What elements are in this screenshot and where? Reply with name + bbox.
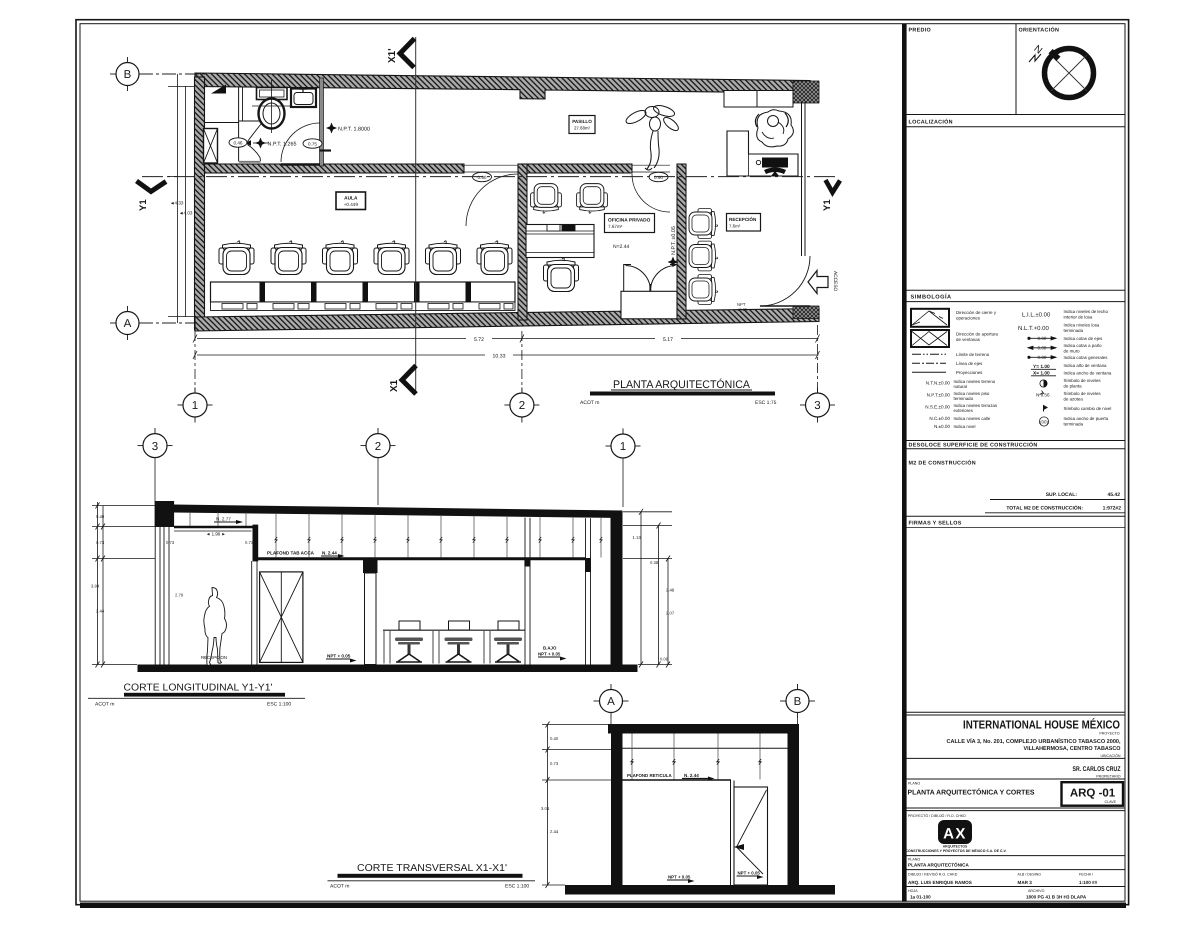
svg-text:Indica ancho de ventana: Indica ancho de ventana (1064, 371, 1112, 376)
svg-text:exteriores: exteriores (954, 408, 974, 413)
svg-text:ORIENTACIÓN: ORIENTACIÓN (1019, 27, 1060, 34)
svg-text:N.P.T. ±0.05: N.P.T. ±0.05 (671, 226, 677, 255)
svg-text:ALB / DESING: ALB / DESING (1018, 873, 1042, 877)
svg-text:PLANTA ARQUITECTÓNICA: PLANTA ARQUITECTÓNICA (908, 862, 970, 868)
svg-text:45.42: 45.42 (1107, 492, 1120, 498)
svg-text:ACOT m: ACOT m (95, 702, 114, 708)
svg-text:TOTAL M2 DE CONSTRUCCIÓN:: TOTAL M2 DE CONSTRUCCIÓN: (1006, 505, 1083, 512)
svg-text:ARQUITECTOS: ARQUITECTOS (943, 844, 968, 848)
svg-text:DESGLOCE SUPERFICIE DE CONSTRU: DESGLOCE SUPERFICIE DE CONSTRUCCIÓN (909, 441, 1038, 448)
svg-text:SUP. LOCAL:: SUP. LOCAL: (1046, 492, 1078, 498)
svg-text:3.94: 3.94 (91, 584, 100, 589)
svg-text:0.08: 0.08 (660, 657, 669, 662)
svg-text:Símbolo de niveles: Símbolo de niveles (1064, 378, 1102, 383)
svg-text:2.48: 2.48 (666, 588, 675, 593)
svg-text:Símbolo cambio de nivel: Símbolo cambio de nivel (1064, 406, 1112, 411)
svg-text:2.79: 2.79 (175, 593, 184, 598)
svg-text:3: 3 (152, 441, 158, 453)
svg-text:B: B (794, 696, 802, 708)
svg-text:ESC 1:100: ESC 1:100 (505, 884, 529, 890)
svg-text:3.04: 3.04 (541, 806, 550, 811)
svg-text:FIRMAS Y SELLOS: FIRMAS Y SELLOS (909, 521, 962, 527)
svg-text:N.L.T.+0.00: N.L.T.+0.00 (1018, 325, 1050, 332)
svg-text:PREDIO: PREDIO (909, 28, 931, 34)
svg-text:N 8.56: N 8.56 (1036, 393, 1050, 398)
svg-text:0.40: 0.40 (550, 736, 559, 741)
svg-text:CORTE TRANSVERSAL X1-X1': CORTE TRANSVERSAL X1-X1' (357, 863, 507, 874)
svg-text:ARCHIVO: ARCHIVO (1028, 889, 1045, 893)
svg-text:UBICACIÓN: UBICACIÓN (1101, 753, 1121, 758)
svg-text:PLANTA ARQUITECTÓNICA Y CORTES: PLANTA ARQUITECTÓNICA Y CORTES (908, 788, 1035, 797)
svg-text:Línea de ejes: Línea de ejes (956, 361, 983, 366)
svg-text:CLAVE: CLAVE (1104, 800, 1116, 804)
svg-text:0.73: 0.73 (96, 540, 105, 545)
svg-text:1a 01-100: 1a 01-100 (910, 895, 931, 900)
svg-text:1: 1 (620, 441, 626, 453)
svg-text:0.90: 0.90 (478, 175, 487, 180)
svg-text:SIMBOLOGÍA: SIMBOLOGÍA (911, 294, 952, 301)
svg-text:±0.05: ±0.05 (737, 307, 748, 312)
svg-text:interior de losa: interior de losa (1064, 315, 1093, 320)
svg-text:RECEPCION: RECEPCION (201, 655, 227, 660)
svg-text:PLANO: PLANO (908, 782, 920, 786)
svg-text:terminada: terminada (1064, 422, 1084, 427)
svg-text:PASILLO: PASILLO (572, 119, 592, 124)
svg-text:(00): (00) (1040, 420, 1048, 425)
svg-text:1.13: 1.13 (633, 535, 642, 540)
svg-text:Indica cotas a paño: Indica cotas a paño (1064, 343, 1103, 348)
svg-text:N.P.T. 1.8000: N.P.T. 1.8000 (338, 126, 370, 132)
svg-text:Indica niveles losa: Indica niveles losa (1064, 323, 1100, 328)
svg-text:NPT + 0.05: NPT + 0.05 (668, 875, 691, 880)
svg-text:Indica niveles calle: Indica niveles calle (954, 416, 991, 421)
svg-text:MAR 3: MAR 3 (1018, 880, 1033, 885)
svg-text:2.44: 2.44 (550, 829, 559, 834)
svg-text:ESC 1:75: ESC 1:75 (755, 400, 777, 406)
svg-text:PLAFOND RETICULA: PLAFOND RETICULA (627, 773, 672, 778)
svg-text:Indica cotas generales: Indica cotas generales (1064, 355, 1109, 360)
svg-text:5.72: 5.72 (474, 337, 484, 343)
svg-text:2.44: 2.44 (96, 609, 105, 614)
svg-text:0.73: 0.73 (166, 540, 175, 545)
svg-text:N.±0.00: N.±0.00 (934, 424, 951, 429)
svg-text:A: A (124, 318, 132, 330)
svg-text:N. 2.44: N. 2.44 (322, 551, 337, 556)
svg-text:Indica cotas de ejes: Indica cotas de ejes (1064, 336, 1104, 341)
svg-text:Y1: Y1 (138, 199, 149, 211)
svg-text:Dirección de apertura: Dirección de apertura (956, 332, 999, 337)
svg-text:0.90: 0.90 (654, 175, 663, 180)
svg-text:Límite de terreno: Límite de terreno (956, 352, 990, 357)
svg-text:Proyecciones: Proyecciones (956, 370, 983, 375)
svg-text:N.P.T.±0.00: N.P.T.±0.00 (927, 393, 951, 398)
svg-text:AULA: AULA (344, 196, 358, 202)
svg-text:NPT + 0.05: NPT + 0.05 (327, 654, 351, 659)
svg-text:LOCALIZACIÓN: LOCALIZACIÓN (909, 119, 953, 126)
svg-text:0.38: 0.38 (650, 560, 659, 565)
svg-text:3: 3 (814, 400, 820, 412)
svg-text:1800 PG 41 B 3H H3 DLAPA: 1800 PG 41 B 3H H3 DLAPA (1026, 895, 1087, 900)
svg-text:terminado: terminado (954, 396, 974, 401)
svg-text:1:100 ##: 1:100 ## (1079, 880, 1098, 885)
svg-text:ACOT m: ACOT m (330, 884, 349, 890)
svg-text:PLANO: PLANO (908, 857, 920, 861)
svg-text:0.73: 0.73 (550, 761, 559, 766)
svg-text:◄ 1.98 ►: ◄ 1.98 ► (206, 532, 226, 537)
svg-text:0.46: 0.46 (234, 140, 243, 145)
svg-text:10.33: 10.33 (493, 354, 506, 360)
svg-text:B: B (124, 69, 132, 81)
svg-text:0.40: 0.40 (96, 514, 105, 519)
svg-text:27.68m²: 27.68m² (574, 126, 591, 131)
svg-text:ARQ -01: ARQ -01 (1070, 788, 1116, 800)
svg-text:2: 2 (519, 400, 525, 412)
svg-text:N.C.±0.00: N.C.±0.00 (929, 416, 950, 421)
svg-text:PLAFOND TAB ACCA: PLAFOND TAB ACCA (267, 551, 315, 556)
svg-text:FECHA /: FECHA / (1079, 873, 1093, 877)
svg-text:VILLAHERMOSA, CENTRO TABASCO: VILLAHERMOSA, CENTRO TABASCO (1024, 746, 1122, 752)
svg-text:OFICINA PRIVADO: OFICINA PRIVADO (608, 218, 651, 224)
svg-text:DIBUJO / REVISÓ R.O. CHKD: DIBUJO / REVISÓ R.O. CHKD (908, 872, 958, 877)
svg-text:Indica ancho de puerta: Indica ancho de puerta (1064, 416, 1109, 421)
svg-text:7.6m²: 7.6m² (729, 224, 741, 229)
svg-text:PROPIETARIO: PROPIETARIO (1096, 775, 1120, 779)
svg-text:7.67m²: 7.67m² (608, 224, 623, 229)
svg-text:Indica niveles de lecho: Indica niveles de lecho (1064, 309, 1109, 314)
svg-text:N. 2.44: N. 2.44 (684, 773, 699, 778)
svg-text:de muro: de muro (1064, 349, 1081, 354)
svg-text:B.AJO: B.AJO (543, 646, 557, 651)
svg-text:HOJA: HOJA (908, 889, 918, 893)
svg-text:NPT + 0.05: NPT + 0.05 (538, 652, 561, 657)
svg-text:X1': X1' (387, 48, 398, 63)
svg-text:N.S.E.±0.00: N.S.E.±0.00 (925, 405, 950, 410)
svg-text:N.T.N.±0.00: N.T.N.±0.00 (926, 381, 951, 386)
svg-text:2.07: 2.07 (666, 611, 675, 616)
svg-text:Indica nivel: Indica nivel (954, 424, 976, 429)
svg-text:natural: natural (954, 384, 967, 389)
svg-text:Y1: Y1 (822, 199, 833, 211)
svg-text:Símbolo de niveles: Símbolo de niveles (1064, 391, 1102, 396)
svg-text:M2 DE CONSTRUCCIÓN: M2 DE CONSTRUCCIÓN (909, 460, 976, 467)
svg-text:PLANTA ARQUITECTÓNICA: PLANTA ARQUITECTÓNICA (613, 378, 751, 391)
svg-text:PROYECTÓ / DIBUJÓ / R.O. CHKD: PROYECTÓ / DIBUJÓ / R.O. CHKD (908, 813, 966, 818)
svg-text:0.75: 0.75 (308, 141, 317, 146)
svg-text:L.I.L.±0.00: L.I.L.±0.00 (1022, 312, 1051, 319)
svg-text:A: A (607, 696, 615, 708)
svg-text:Dirección de cierre y: Dirección de cierre y (956, 310, 997, 315)
svg-text:◄4.03: ◄4.03 (179, 211, 193, 216)
svg-text:ACCESO: ACCESO (832, 271, 838, 292)
svg-text:1: 1 (192, 400, 198, 412)
svg-text:de planta: de planta (1064, 384, 1083, 389)
svg-text:AX: AX (943, 826, 967, 843)
svg-text:ACOT m: ACOT m (580, 400, 599, 406)
svg-text:N=2.44: N=2.44 (613, 244, 629, 250)
svg-text:ARQ. LUIS ENRIQUE RAMOS: ARQ. LUIS ENRIQUE RAMOS (908, 880, 972, 885)
svg-text:◄4.33: ◄4.33 (170, 201, 184, 206)
svg-text:CALLE VÍA 3, No. 201, COMPLEJO: CALLE VÍA 3, No. 201, COMPLEJO URBANÍSTI… (947, 738, 1121, 745)
svg-text:de ventanas: de ventanas (956, 337, 981, 342)
svg-text:2: 2 (375, 441, 381, 453)
svg-text:terminada: terminada (1064, 328, 1084, 333)
svg-text:CORTE LONGITUDINAL Y1-Y1': CORTE LONGITUDINAL Y1-Y1' (124, 683, 273, 694)
svg-text:INTERNATIONAL HOUSE MÉXICO: INTERNATIONAL HOUSE MÉXICO (963, 718, 1120, 732)
svg-text:PROYECTO: PROYECTO (1099, 732, 1119, 736)
svg-text:N. 2.77: N. 2.77 (216, 517, 231, 522)
svg-text:ESC 1:100: ESC 1:100 (267, 702, 291, 708)
svg-text:N.P.T. 1.265: N.P.T. 1.265 (268, 141, 297, 147)
svg-text:de azotea: de azotea (1064, 397, 1084, 402)
svg-text:1:972#2: 1:972#2 (1103, 506, 1122, 512)
svg-text:SR. CARLOS CRUZ: SR. CARLOS CRUZ (1073, 766, 1121, 773)
svg-text:0.73: 0.73 (245, 540, 254, 545)
svg-text:RECEPCIÓN: RECEPCIÓN (729, 216, 757, 222)
svg-text:NPT + 0.05: NPT + 0.05 (738, 871, 761, 876)
svg-text:operaciones: operaciones (956, 316, 981, 321)
svg-text:Indica alto de ventana: Indica alto de ventana (1064, 363, 1108, 368)
svg-text:X1: X1 (389, 379, 400, 392)
svg-text:5.17: 5.17 (663, 337, 673, 343)
svg-text:CONSTRUCCIONES Y PROYECTOS DE: CONSTRUCCIONES Y PROYECTOS DE MÉXICO S.A… (905, 848, 1006, 853)
svg-text:+0.449: +0.449 (344, 202, 359, 207)
